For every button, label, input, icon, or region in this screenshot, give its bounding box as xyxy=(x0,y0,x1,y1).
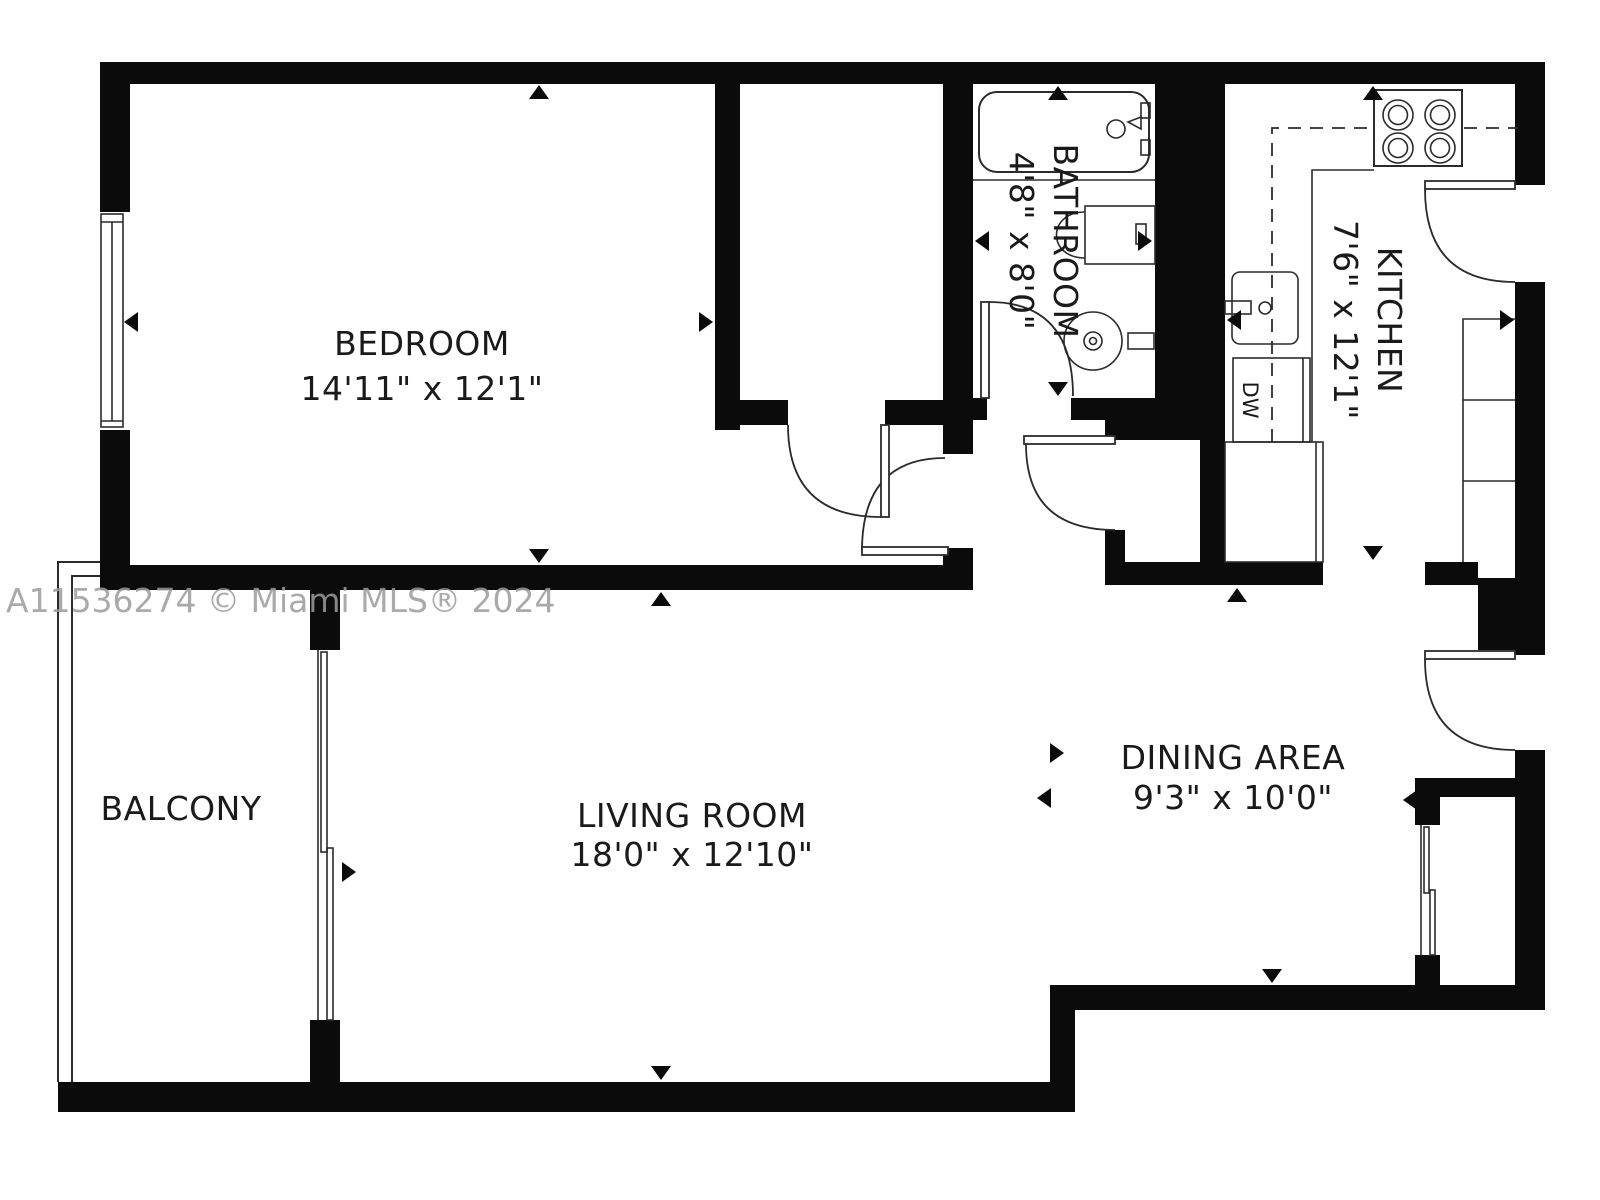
living-room-label: LIVING ROOM xyxy=(577,796,807,835)
wall-hallcloset-bottom xyxy=(1105,562,1225,585)
living-room-dims: 18'0" x 12'10" xyxy=(571,835,814,874)
floor-plan-svg: DW BEDROOM 14'11" x 12'1" xyxy=(0,0,1600,1200)
wall-slider-stub-bottom xyxy=(310,1020,340,1082)
wall-kitchen-bottom-right xyxy=(1425,562,1478,585)
wall-left-seg1 xyxy=(100,62,130,212)
kitchen-dims: 7'6" x 12'1" xyxy=(1326,220,1365,420)
wall-living-bottom xyxy=(58,1082,1075,1112)
bathroom-label: BATHROOM xyxy=(1046,144,1085,339)
entry-door-dining xyxy=(1425,651,1515,750)
wall-window-cap-bottom xyxy=(1415,955,1440,985)
wall-window-cap-top xyxy=(1415,797,1440,825)
entry-door-kitchen xyxy=(1425,181,1515,282)
refrigerator xyxy=(1225,442,1323,562)
bedroom-door xyxy=(862,458,948,555)
wall-dining-bottom xyxy=(1050,985,1545,1010)
stove xyxy=(1374,90,1462,166)
wall-closet-bottom-right xyxy=(885,400,943,425)
bedroom-label: BEDROOM xyxy=(334,324,510,363)
kitchen-label: KITCHEN xyxy=(1370,247,1409,394)
floor-plan-page: DW BEDROOM 14'11" x 12'1" xyxy=(0,0,1600,1200)
wall-chase xyxy=(1155,84,1225,415)
wall-right-seg1 xyxy=(1515,62,1545,185)
wall-hallcloset-top xyxy=(1105,415,1225,440)
wall-bathroom-left-upper xyxy=(943,62,973,454)
wall-nook-top xyxy=(1415,778,1522,797)
wall-closet-bottom-left xyxy=(740,400,788,425)
dining-area-dims: 9'3" x 10'0" xyxy=(1133,778,1333,817)
bathroom-dims: 4'8" x 8'0" xyxy=(1002,152,1041,331)
dishwasher-label: DW xyxy=(1238,382,1262,419)
dining-sliding-window xyxy=(1421,825,1435,955)
dining-area-label: DINING AREA xyxy=(1121,738,1346,777)
balcony-sliding-door xyxy=(318,650,333,1020)
wall-kitchen-bottom-left xyxy=(1225,562,1323,585)
hall-closet-door xyxy=(1024,436,1115,530)
wall-corner-block xyxy=(1478,578,1545,650)
balcony-railing xyxy=(58,562,100,1082)
balcony-label: BALCONY xyxy=(101,789,262,828)
mls-watermark: A11536274 © Miami MLS® 2024 xyxy=(6,581,555,620)
wall-bath-bottom-left xyxy=(973,398,987,420)
bedroom-dims: 14'11" x 12'1" xyxy=(301,369,544,408)
wall-bedroom-closet xyxy=(715,84,740,430)
walkin-closet-door xyxy=(788,425,889,517)
wall-top xyxy=(100,62,1545,84)
kitchen-sink xyxy=(1225,272,1298,344)
